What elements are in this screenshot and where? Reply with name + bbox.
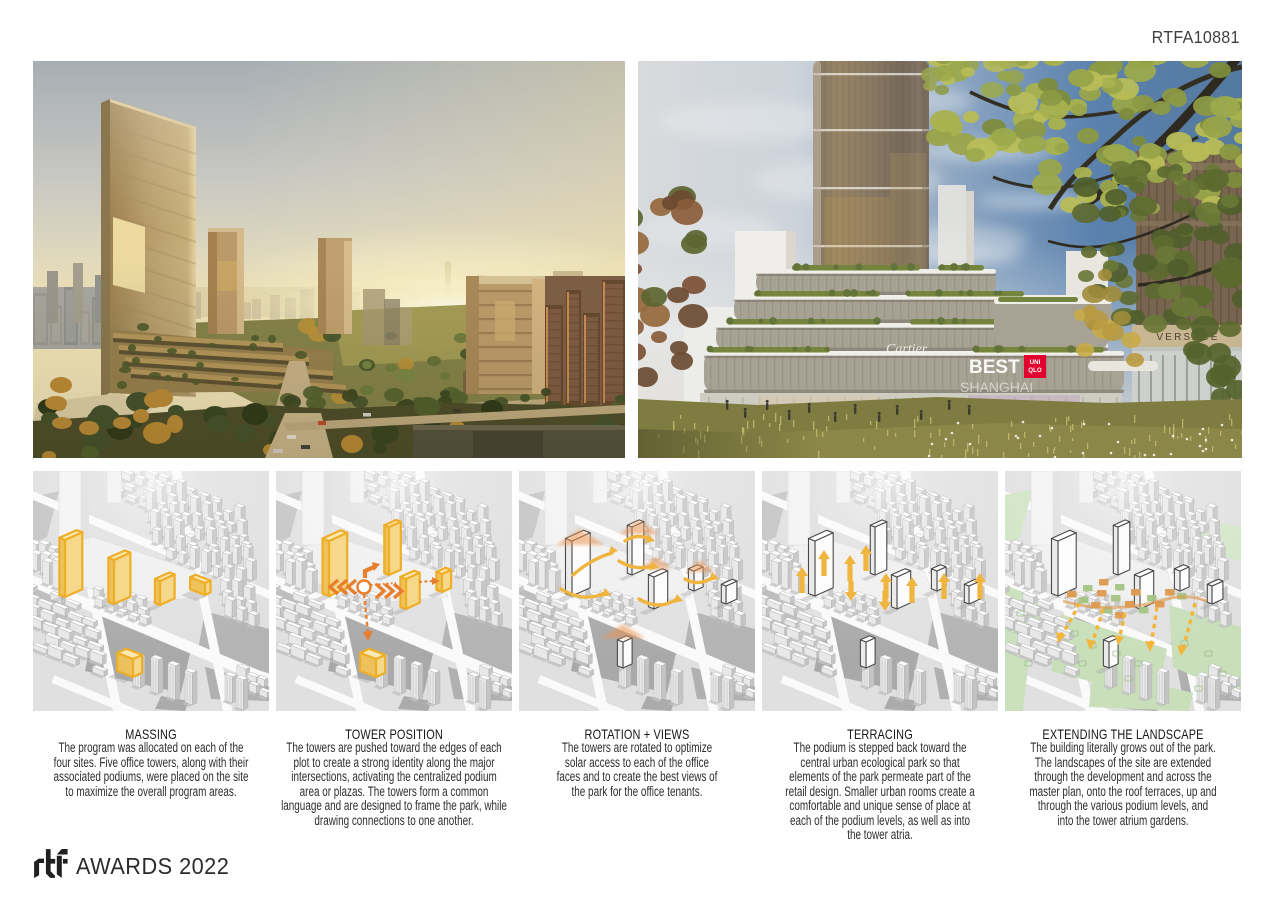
svg-text:QLO: QLO: [1028, 367, 1042, 374]
svg-text:Cartier: Cartier: [886, 342, 928, 357]
svg-text:BEST: BEST: [969, 357, 1020, 378]
svg-text:SHANGHAI: SHANGHAI: [960, 379, 1033, 395]
svg-text:UNI: UNI: [1030, 359, 1041, 366]
